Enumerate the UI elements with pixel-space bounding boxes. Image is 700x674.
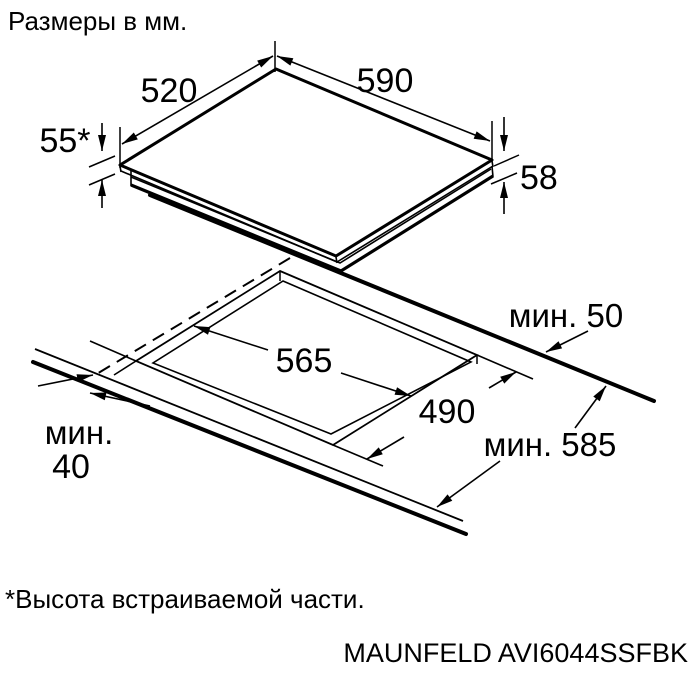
label-cooktop-width: 590 bbox=[357, 62, 414, 100]
arrow-490-lower bbox=[367, 437, 404, 459]
body-step-right bbox=[492, 166, 493, 177]
dim-cutout-width-565: 565 bbox=[194, 326, 411, 396]
arrow-565-right bbox=[341, 373, 411, 396]
tick-58-top bbox=[494, 155, 519, 166]
footnote: *Высота встраиваемой части. bbox=[5, 584, 365, 614]
page-title: Размеры в мм. bbox=[8, 6, 187, 36]
tick-55-top bbox=[89, 156, 115, 167]
ext-line-rear-right bbox=[477, 355, 533, 379]
cooktop-overhang-dashed-line bbox=[95, 258, 290, 375]
arrow-490-upper bbox=[489, 372, 516, 388]
label-cooktop-depth: 520 bbox=[141, 72, 198, 110]
arrow-min585-up bbox=[575, 386, 606, 428]
label-total-height: 58 bbox=[520, 159, 558, 197]
ext-line-front-left bbox=[90, 341, 136, 361]
arrow-565-left bbox=[194, 326, 268, 350]
ext-line-front-right bbox=[333, 445, 383, 466]
label-cutout-width: 565 bbox=[276, 342, 333, 380]
arrow-min585-down bbox=[437, 461, 500, 507]
arrow-min50 bbox=[546, 331, 588, 352]
dim-built-in-height-55: 55* bbox=[39, 122, 115, 208]
label-min-front-clearance-value: 40 bbox=[52, 448, 90, 486]
label-min-rear-clearance: мин. 50 bbox=[509, 297, 623, 334]
dim-min-rear-clearance-50: мин. 50 bbox=[509, 297, 623, 352]
dim-min-front-clearance-40: мин. 40 bbox=[38, 375, 150, 486]
label-min-worktop-depth: мин. 585 bbox=[484, 426, 617, 463]
dimension-drawing-page: Размеры в мм. 520 590 bbox=[0, 0, 700, 674]
label-min-front-clearance-word: мин. bbox=[45, 414, 114, 451]
dim-total-height-58: 58 bbox=[491, 117, 558, 214]
ext-line-left bbox=[114, 361, 136, 375]
model-number: MAUNFELD AVI6044SSFBK bbox=[343, 638, 688, 668]
label-built-in-height: 55* bbox=[39, 122, 90, 160]
label-cutout-depth: 490 bbox=[419, 393, 476, 431]
technical-drawing: Размеры в мм. 520 590 bbox=[0, 0, 700, 674]
